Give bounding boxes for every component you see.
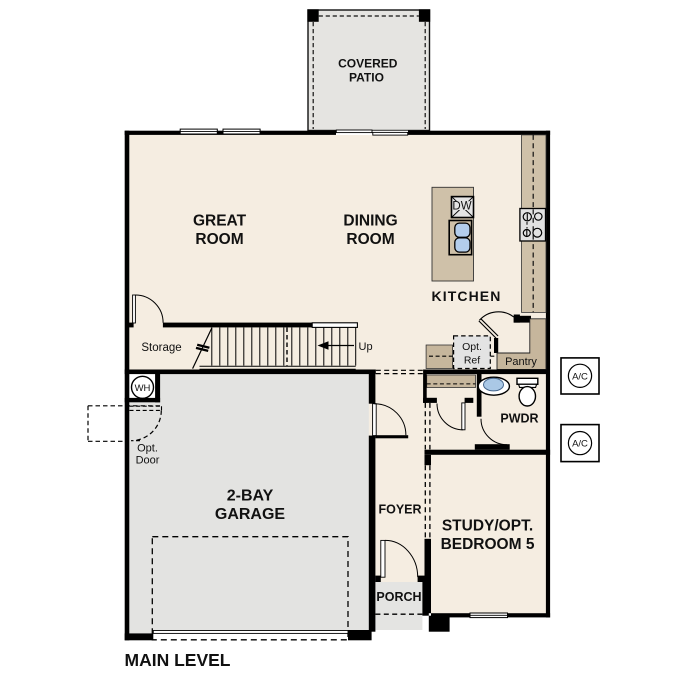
svg-text:PWDR: PWDR	[500, 412, 538, 426]
svg-text:DW: DW	[452, 201, 471, 213]
svg-text:Storage: Storage	[141, 342, 181, 354]
svg-text:WH: WH	[135, 383, 151, 394]
svg-text:Up: Up	[359, 341, 373, 353]
svg-text:COVERED: COVERED	[338, 57, 398, 71]
svg-text:Opt.: Opt.	[462, 341, 482, 353]
svg-text:ROOM: ROOM	[346, 231, 394, 248]
svg-text:KITCHEN: KITCHEN	[432, 288, 502, 304]
svg-text:Pantry: Pantry	[505, 356, 537, 368]
svg-text:PORCH: PORCH	[376, 590, 421, 604]
svg-text:GREAT: GREAT	[193, 213, 247, 230]
svg-text:PATIO: PATIO	[349, 71, 384, 85]
svg-text:DINING: DINING	[343, 213, 397, 230]
svg-text:A/C: A/C	[572, 371, 588, 382]
svg-text:ROOM: ROOM	[195, 231, 243, 248]
svg-text:Opt.: Opt.	[137, 443, 158, 455]
svg-text:A/C: A/C	[572, 439, 588, 450]
svg-text:BEDROOM 5: BEDROOM 5	[441, 536, 535, 553]
svg-text:Ref: Ref	[464, 355, 480, 367]
svg-text:STUDY/OPT.: STUDY/OPT.	[442, 518, 533, 535]
svg-text:FOYER: FOYER	[378, 503, 421, 517]
svg-text:MAIN LEVEL: MAIN LEVEL	[125, 650, 231, 670]
svg-text:2-BAY: 2-BAY	[227, 488, 274, 505]
svg-text:GARAGE: GARAGE	[215, 506, 286, 523]
svg-text:Door: Door	[136, 455, 160, 467]
